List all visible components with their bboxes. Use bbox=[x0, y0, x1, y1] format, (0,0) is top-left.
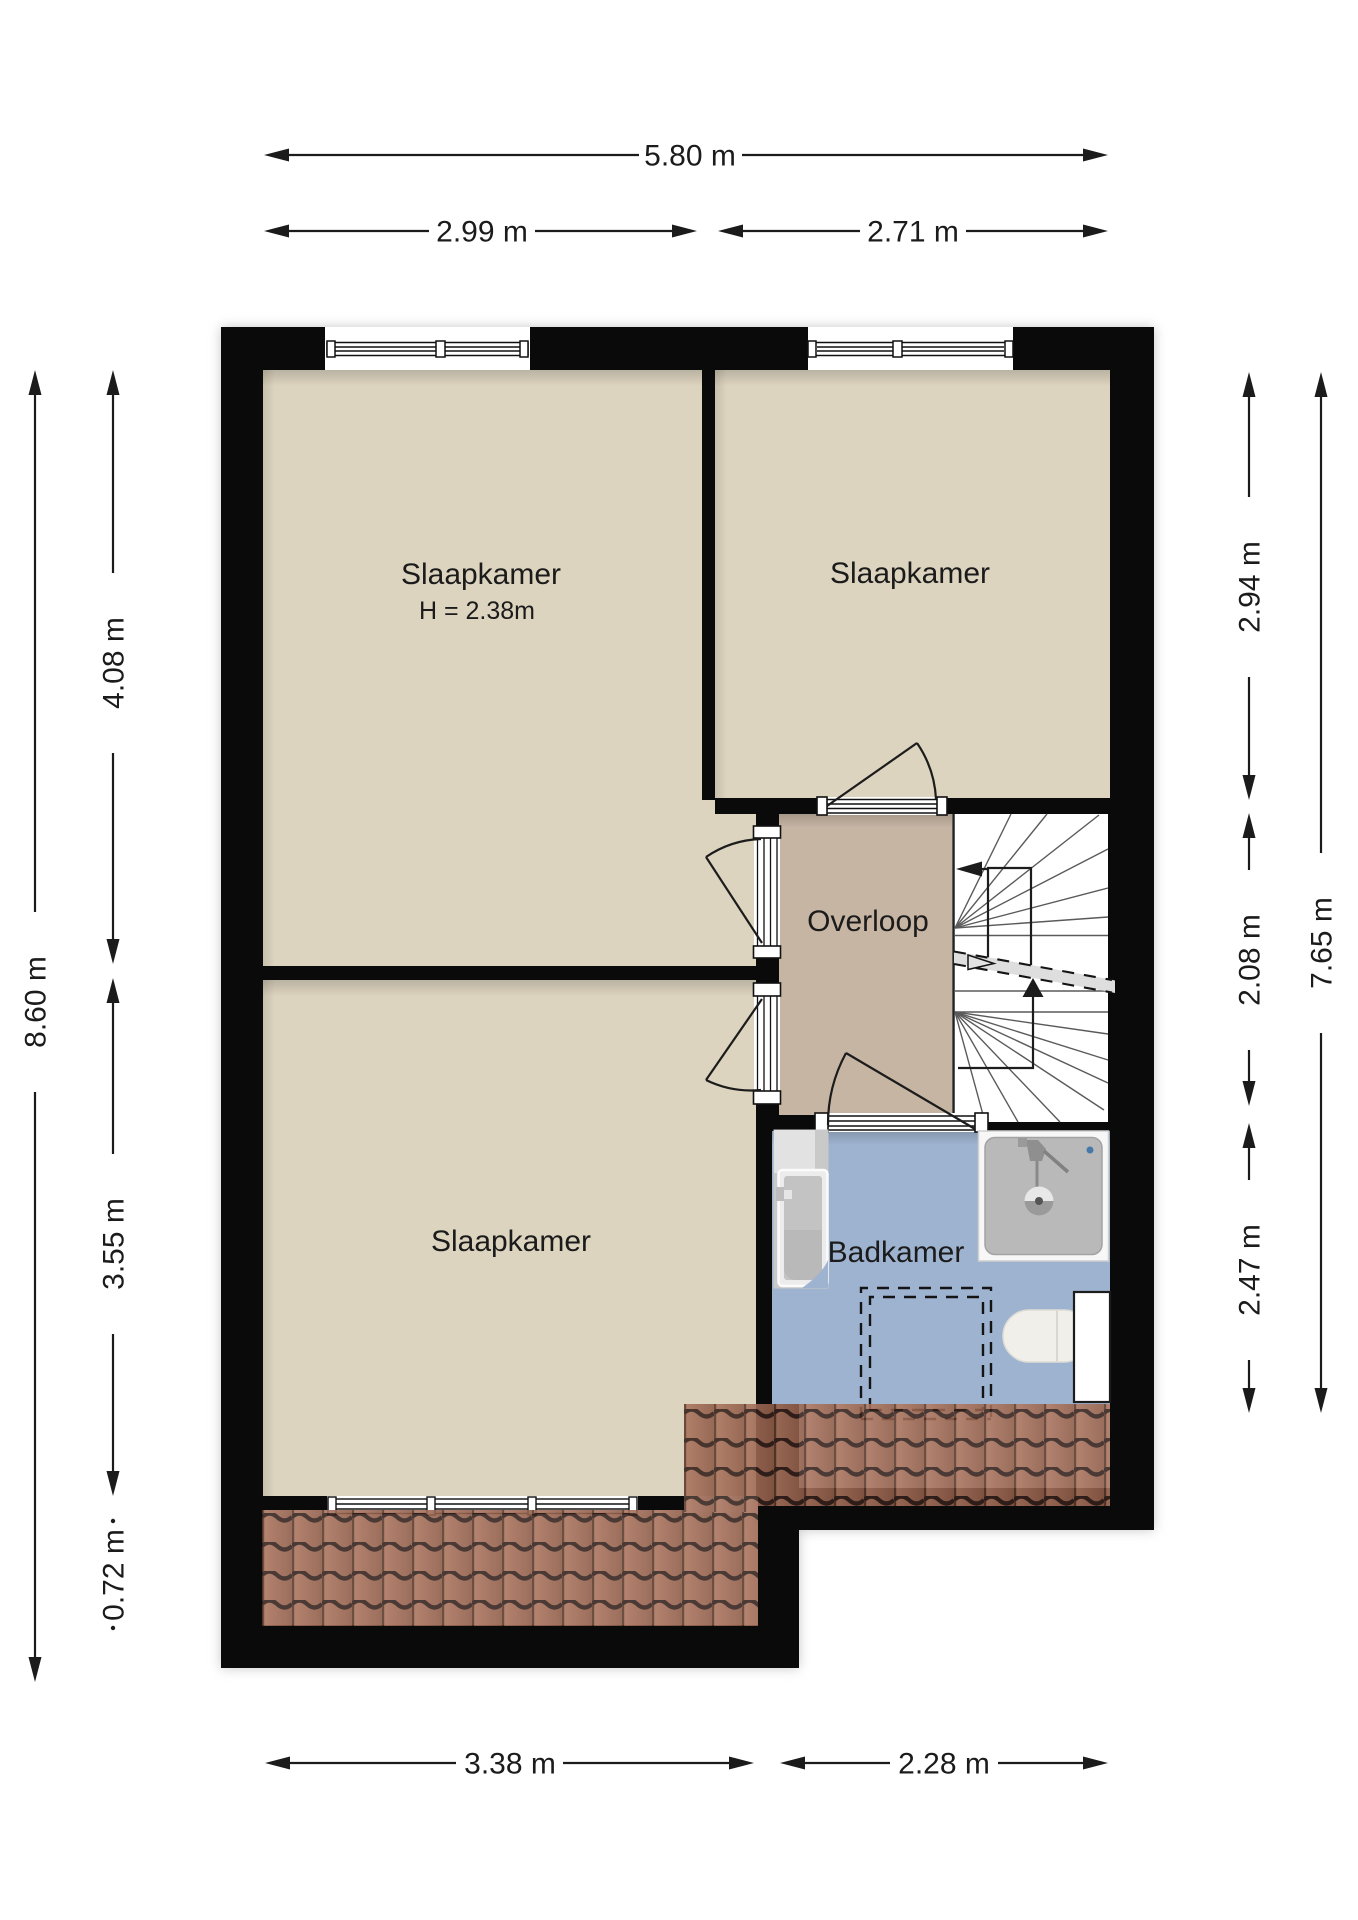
svg-text:8.60 m: 8.60 m bbox=[20, 956, 53, 1048]
svg-text:2.47 m: 2.47 m bbox=[1234, 1224, 1267, 1316]
svg-text:2.08 m: 2.08 m bbox=[1234, 914, 1267, 1006]
svg-text:2.71 m: 2.71 m bbox=[867, 216, 959, 249]
svg-text:Slaapkamer: Slaapkamer bbox=[431, 1225, 591, 1258]
svg-text:4.08 m: 4.08 m bbox=[98, 617, 131, 709]
svg-text:2.28 m: 2.28 m bbox=[898, 1748, 990, 1781]
svg-text:3.38 m: 3.38 m bbox=[464, 1748, 556, 1781]
svg-text:H = 2.38m: H = 2.38m bbox=[419, 597, 535, 625]
svg-text:Slaapkamer: Slaapkamer bbox=[401, 558, 561, 591]
svg-text:2.94 m: 2.94 m bbox=[1234, 541, 1267, 633]
svg-text:0.72 m: 0.72 m bbox=[98, 1529, 131, 1621]
svg-text:5.80 m: 5.80 m bbox=[644, 140, 736, 173]
svg-text:2.99 m: 2.99 m bbox=[436, 216, 528, 249]
svg-text:Slaapkamer: Slaapkamer bbox=[830, 557, 990, 590]
svg-text:Badkamer: Badkamer bbox=[828, 1236, 965, 1269]
svg-text:7.65 m: 7.65 m bbox=[1306, 897, 1339, 989]
svg-text:Overloop: Overloop bbox=[807, 905, 929, 938]
svg-text:3.55 m: 3.55 m bbox=[98, 1198, 131, 1290]
